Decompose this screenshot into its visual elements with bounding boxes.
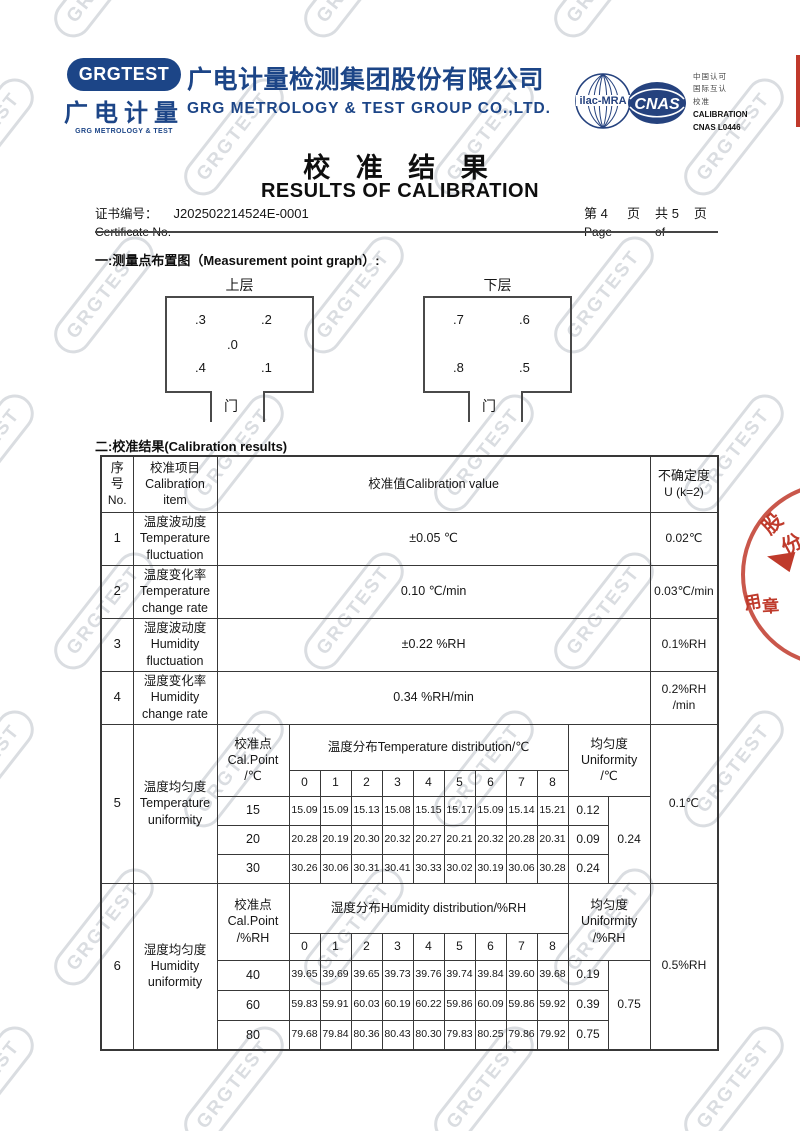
- reading: 30.06: [320, 854, 351, 883]
- item-en: Temperature: [134, 530, 217, 546]
- cal-point-unit: /%RH: [218, 930, 289, 946]
- item-cell: 湿度变化率 Humidity change rate: [133, 671, 217, 724]
- header-value-cell: 校准值Calibration value: [217, 456, 650, 512]
- distribution-header-cell: 温度分布Temperature distribution/℃: [289, 724, 568, 770]
- row-uniformity: 0.09: [568, 825, 608, 854]
- overall-uniformity: 0.24: [608, 796, 650, 883]
- calibration-results-table: 序 号 No. 校准项目 Calibration item 校准值Calibra…: [100, 455, 719, 1051]
- reading: 79.86: [506, 1020, 537, 1050]
- reading: 80.36: [351, 1020, 382, 1050]
- point-index: 2: [351, 770, 382, 796]
- header-item-en2: item: [134, 492, 217, 508]
- table-row: 4 湿度变化率 Humidity change rate 0.34 %RH/mi…: [101, 671, 718, 724]
- reading: 15.08: [382, 796, 413, 825]
- reading: 79.92: [537, 1020, 568, 1050]
- reading: 39.69: [320, 960, 351, 990]
- chamber-outline: [165, 296, 314, 393]
- uncertainty-cell: 0.1℃: [650, 724, 718, 883]
- cal-point: 15: [217, 796, 289, 825]
- door-line-right: [263, 391, 265, 422]
- uncertainty-cell: 0.03℃/min: [650, 565, 718, 618]
- reading: 60.19: [382, 990, 413, 1020]
- page-number-block: 第 4 Page 页 共 5 of 页: [584, 203, 707, 239]
- reading: 39.65: [289, 960, 320, 990]
- total-char: 页: [694, 203, 707, 239]
- item-en: Humidity: [134, 689, 217, 705]
- table-row: 3 湿度波动度 Humidity fluctuation ±0.22 %RH 0…: [101, 618, 718, 671]
- cal-point-cn: 校准点: [218, 897, 289, 913]
- point-index: 1: [320, 933, 351, 960]
- grg-logo: GRGTEST 广电计量 GRG METROLOGY & TEST: [60, 58, 188, 135]
- header-uncertainty-cell: 不确定度 U (k=2): [650, 456, 718, 512]
- reading: 30.33: [413, 854, 444, 883]
- row-no: 1: [101, 512, 133, 565]
- calibration-certificate-page: GRGTESTGRGTESTGRGTESTGRGTESTGRGTESTGRGTE…: [0, 0, 800, 1131]
- table-row: 1 温度波动度 Temperature fluctuation ±0.05 ℃ …: [101, 512, 718, 565]
- reading: 39.84: [475, 960, 506, 990]
- measurement-diagram-lower: 下层 .7 .6 .8 .5 门: [423, 296, 572, 424]
- uniformity-unit: /℃: [569, 768, 650, 784]
- item-cn: 温度均匀度: [134, 779, 217, 795]
- uniformity-cn: 均匀度: [569, 736, 650, 752]
- item-cn: 湿度均匀度: [134, 942, 217, 958]
- point-8: .8: [453, 360, 464, 375]
- accred-line: 国际互认: [693, 83, 748, 95]
- seal-char: 章: [761, 591, 780, 617]
- header-no-cn2: 号: [102, 476, 133, 493]
- cal-point: 20: [217, 825, 289, 854]
- uniformity-en: Uniformity: [569, 752, 650, 768]
- value-cell: 0.10 ℃/min: [217, 565, 650, 618]
- point-index: 7: [506, 933, 537, 960]
- reading: 30.26: [289, 854, 320, 883]
- page-number: 4: [601, 206, 608, 221]
- value-cell: 0.34 %RH/min: [217, 671, 650, 724]
- point-6: .6: [519, 312, 530, 327]
- point-index: 3: [382, 770, 413, 796]
- row-uniformity: 0.19: [568, 960, 608, 990]
- accred-line: CNAS L0446: [693, 121, 748, 134]
- reading: 30.19: [475, 854, 506, 883]
- item-cn: 湿度变化率: [134, 673, 217, 689]
- bottom-border-right: [522, 391, 572, 393]
- reading: 20.28: [506, 825, 537, 854]
- grg-logo-en: GRG METROLOGY & TEST: [60, 128, 188, 135]
- item-cell: 温度均匀度 Temperature uniformity: [133, 724, 217, 883]
- certificate-number-block: 证书编号：J202502214524E-0001 Certificate No.: [95, 203, 309, 239]
- seal-edge-mark: [796, 55, 800, 127]
- reading: 79.68: [289, 1020, 320, 1050]
- row-no: 6: [101, 883, 133, 1050]
- reading: 30.31: [351, 854, 382, 883]
- reading: 39.76: [413, 960, 444, 990]
- cal-point-en: Cal.Point: [218, 752, 289, 768]
- row-uniformity: 0.12: [568, 796, 608, 825]
- company-name-block: 广电计量检测集团股份有限公司 GRG METROLOGY & TEST GROU…: [187, 60, 552, 118]
- uniformity-header-cell: 均匀度 Uniformity /℃: [568, 724, 650, 796]
- point-index: 0: [289, 770, 320, 796]
- point-index: 4: [413, 933, 444, 960]
- point-index: 1: [320, 770, 351, 796]
- reading: 59.91: [320, 990, 351, 1020]
- header-no-cell: 序 号 No.: [101, 456, 133, 512]
- section1-heading: 一:测量点布置图（Measurement point graph）:: [95, 250, 380, 269]
- reading: 39.73: [382, 960, 413, 990]
- section2-heading: 二:校准结果(Calibration results): [95, 436, 287, 455]
- point-7: .7: [453, 312, 464, 327]
- header-no-cn1: 序: [102, 460, 133, 477]
- certificate-label-cn: 证书编号：: [95, 207, 158, 221]
- point-5: .5: [519, 360, 530, 375]
- item-en: fluctuation: [134, 547, 217, 563]
- page-title-en: RESULTS OF CALIBRATION: [0, 180, 800, 203]
- reading: 59.86: [506, 990, 537, 1020]
- reading: 15.13: [351, 796, 382, 825]
- cal-point-header-cell: 校准点 Cal.Point /%RH: [217, 883, 289, 960]
- accreditation-text: 中国认可 国际互认 校准 CALIBRATION CNAS L0446: [693, 71, 748, 135]
- reading: 20.32: [382, 825, 413, 854]
- reading: 39.60: [506, 960, 537, 990]
- point-index: 2: [351, 933, 382, 960]
- reading: 39.74: [444, 960, 475, 990]
- distribution-header-cell: 湿度分布Humidity distribution/%RH: [289, 883, 568, 933]
- door-label: 门: [224, 396, 238, 416]
- reading: 60.22: [413, 990, 444, 1020]
- item-cn: 湿度波动度: [134, 620, 217, 636]
- point-index: 4: [413, 770, 444, 796]
- header-item-en1: Calibration: [134, 476, 217, 492]
- point-index: 0: [289, 933, 320, 960]
- reading: 59.86: [444, 990, 475, 1020]
- accred-line: 中国认可: [693, 71, 748, 83]
- grg-logo-badge: GRGTEST: [67, 58, 182, 91]
- reading: 15.14: [506, 796, 537, 825]
- reading: 15.21: [537, 796, 568, 825]
- reading: 20.31: [537, 825, 568, 854]
- company-name-en: GRG METROLOGY & TEST GROUP CO.,LTD.: [187, 100, 552, 118]
- reading: 30.28: [537, 854, 568, 883]
- page-prefix: 第: [584, 206, 597, 221]
- row-no: 3: [101, 618, 133, 671]
- reading: 15.15: [413, 796, 444, 825]
- uniformity-header-row: 5 温度均匀度 Temperature uniformity 校准点 Cal.P…: [101, 724, 718, 770]
- grg-logo-cn: 广电计量: [60, 93, 188, 128]
- item-en: Temperature: [134, 583, 217, 599]
- chamber-outline: [423, 296, 572, 393]
- item-en: uniformity: [134, 812, 217, 828]
- uniformity-unit: /%RH: [569, 930, 650, 946]
- reading: 20.30: [351, 825, 382, 854]
- overall-uniformity: 0.75: [608, 960, 650, 1050]
- point-index: 8: [537, 933, 568, 960]
- uncertainty-cell: 0.1%RH: [650, 618, 718, 671]
- row-uniformity: 0.39: [568, 990, 608, 1020]
- bottom-border-left: [165, 391, 211, 393]
- header-item-cn: 校准项目: [134, 460, 217, 476]
- cal-point: 60: [217, 990, 289, 1020]
- reading: 20.27: [413, 825, 444, 854]
- point-2: .2: [261, 312, 272, 327]
- uncertainty-cell: 0.5%RH: [650, 883, 718, 1050]
- point-3: .3: [195, 312, 206, 327]
- upper-layer-title: 上层: [165, 275, 314, 295]
- item-cell: 湿度波动度 Humidity fluctuation: [133, 618, 217, 671]
- point-index: 6: [475, 933, 506, 960]
- uniformity-en: Uniformity: [569, 913, 650, 929]
- reading: 79.83: [444, 1020, 475, 1050]
- company-name-cn: 广电计量检测集团股份有限公司: [187, 60, 552, 96]
- reading: 20.21: [444, 825, 475, 854]
- total-prefix: 共: [655, 206, 668, 221]
- page-content: GRGTEST 广电计量 GRG METROLOGY & TEST 广电计量检测…: [0, 0, 800, 1131]
- reading: 30.02: [444, 854, 475, 883]
- point-index: 5: [444, 770, 475, 796]
- header-no-en: No.: [102, 493, 133, 509]
- uniformity-header-cell: 均匀度 Uniformity /%RH: [568, 883, 650, 960]
- uniformity-header-row: 6 湿度均匀度 Humidity uniformity 校准点 Cal.Poin…: [101, 883, 718, 933]
- point-index: 6: [475, 770, 506, 796]
- item-en: fluctuation: [134, 653, 217, 669]
- row-no: 4: [101, 671, 133, 724]
- reading: 80.25: [475, 1020, 506, 1050]
- cal-point: 40: [217, 960, 289, 990]
- red-company-seal: 股 份 用 章: [741, 482, 800, 667]
- reading: 30.41: [382, 854, 413, 883]
- point-0: .0: [227, 337, 238, 352]
- point-index: 8: [537, 770, 568, 796]
- reading: 20.32: [475, 825, 506, 854]
- cal-point-header-cell: 校准点 Cal.Point /℃: [217, 724, 289, 796]
- bottom-border-left: [423, 391, 469, 393]
- door-line-right: [521, 391, 523, 422]
- row-no: 2: [101, 565, 133, 618]
- reading: 59.92: [537, 990, 568, 1020]
- row-no: 5: [101, 724, 133, 883]
- cal-point: 80: [217, 1020, 289, 1050]
- value-cell: ±0.05 ℃: [217, 512, 650, 565]
- item-en: change rate: [134, 600, 217, 616]
- point-index: 3: [382, 933, 413, 960]
- item-en: Humidity: [134, 958, 217, 974]
- reading: 60.03: [351, 990, 382, 1020]
- row-uniformity: 0.24: [568, 854, 608, 883]
- item-cn: 温度变化率: [134, 567, 217, 583]
- cal-point: 30: [217, 854, 289, 883]
- reading: 39.68: [537, 960, 568, 990]
- total-pages: 5: [672, 206, 679, 221]
- lower-layer-title: 下层: [423, 275, 572, 295]
- door-line-left: [210, 391, 212, 422]
- reading: 20.19: [320, 825, 351, 854]
- reading: 15.09: [475, 796, 506, 825]
- point-4: .4: [195, 360, 206, 375]
- accred-line: 校准: [693, 96, 748, 108]
- item-en: Humidity: [134, 636, 217, 652]
- reading: 60.09: [475, 990, 506, 1020]
- item-en: change rate: [134, 706, 217, 722]
- item-en: uniformity: [134, 974, 217, 990]
- door-label: 门: [482, 396, 496, 416]
- table-header-row: 序 号 No. 校准项目 Calibration item 校准值Calibra…: [101, 456, 718, 512]
- uncertainty-cell: 0.2%RH /min: [650, 671, 718, 724]
- value-cell: ±0.22 %RH: [217, 618, 650, 671]
- ilac-mra-label: ilac-MRA: [579, 95, 626, 107]
- item-cell: 温度波动度 Temperature fluctuation: [133, 512, 217, 565]
- certificate-number: J202502214524E-0001: [174, 206, 309, 221]
- header-rule: [95, 231, 718, 233]
- reading: 30.06: [506, 854, 537, 883]
- uniformity-cn: 均匀度: [569, 897, 650, 913]
- reading: 20.28: [289, 825, 320, 854]
- page-char: 页: [627, 203, 640, 239]
- cnas-logo-icon: CNAS: [627, 80, 687, 131]
- header-unc-en: U (k=2): [651, 485, 718, 501]
- reading: 59.83: [289, 990, 320, 1020]
- cal-point-cn: 校准点: [218, 736, 289, 752]
- item-cell: 温度变化率 Temperature change rate: [133, 565, 217, 618]
- reading: 80.30: [413, 1020, 444, 1050]
- reading: 15.09: [289, 796, 320, 825]
- bottom-border-right: [264, 391, 314, 393]
- door-line-left: [468, 391, 470, 422]
- reading: 79.84: [320, 1020, 351, 1050]
- accred-line: CALIBRATION: [693, 108, 748, 121]
- reading: 39.65: [351, 960, 382, 990]
- reading: 15.17: [444, 796, 475, 825]
- table-row: 2 温度变化率 Temperature change rate 0.10 ℃/m…: [101, 565, 718, 618]
- item-cell: 湿度均匀度 Humidity uniformity: [133, 883, 217, 1050]
- cal-point-unit: /℃: [218, 768, 289, 784]
- cnas-label: CNAS: [634, 96, 680, 113]
- point-index: 7: [506, 770, 537, 796]
- row-uniformity: 0.75: [568, 1020, 608, 1050]
- header-item-cell: 校准项目 Calibration item: [133, 456, 217, 512]
- measurement-diagram-upper: 上层 .3 .2 .0 .4 .1 门: [165, 296, 314, 424]
- header-unc-cn: 不确定度: [651, 468, 718, 485]
- item-en: Temperature: [134, 795, 217, 811]
- ilac-mra-logo-icon: ilac-MRA: [574, 72, 632, 135]
- reading: 15.09: [320, 796, 351, 825]
- item-cn: 温度波动度: [134, 514, 217, 530]
- point-1: .1: [261, 360, 272, 375]
- point-index: 5: [444, 933, 475, 960]
- uncertainty-cell: 0.02℃: [650, 512, 718, 565]
- reading: 80.43: [382, 1020, 413, 1050]
- cal-point-en: Cal.Point: [218, 913, 289, 929]
